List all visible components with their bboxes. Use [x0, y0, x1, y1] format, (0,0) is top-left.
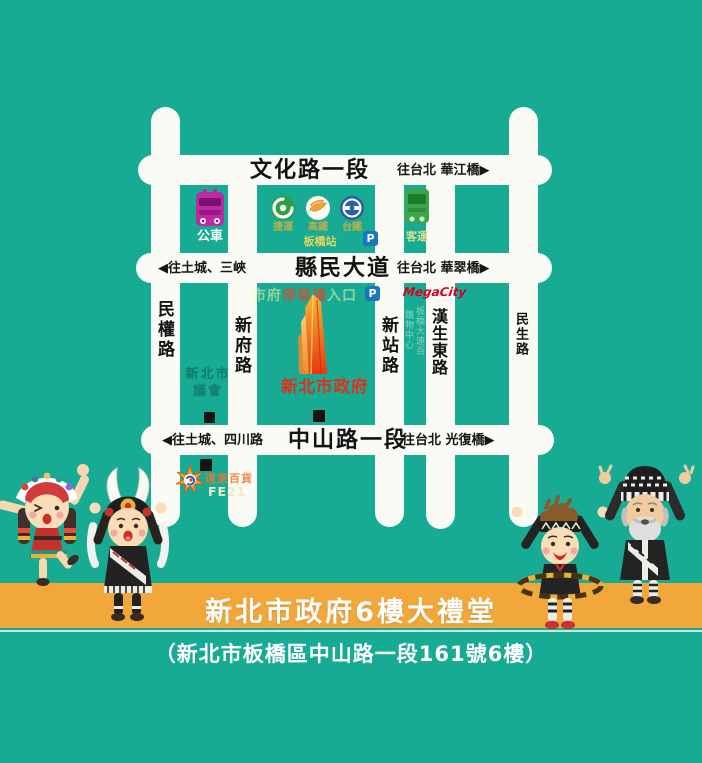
- road-label-xinzhan: 新站路: [379, 316, 396, 376]
- stop-marker: [204, 412, 215, 423]
- direction-hint-guangfu-bridge: 往台北 光復橋▶: [402, 434, 495, 447]
- road-label-xinfu: 新府路: [232, 316, 249, 376]
- parking-icon: P: [363, 231, 378, 246]
- road-label-xianmin: 縣民大道: [295, 258, 391, 280]
- stop-marker: [313, 410, 325, 422]
- mrt-logo: [270, 195, 296, 225]
- venue-address: （新北市板橋區中山路一段161號6樓）: [0, 638, 702, 668]
- indigenous-boy-dancing: [80, 466, 176, 630]
- city-hall-label: 新北市政府: [281, 373, 369, 397]
- road-label-wenhua: 文化路一段: [250, 160, 370, 182]
- city-hall-tower: [276, 290, 348, 378]
- direction-hint-huacui-bridge: 往台北 華翠橋▶: [397, 262, 490, 275]
- bus-icon: [195, 189, 225, 233]
- tra-logo: [339, 195, 365, 225]
- council-note-line2: 議會: [185, 383, 231, 400]
- fe21-code: FE21: [208, 484, 246, 499]
- direction-hint-tucheng-sichuan: ◀往土城、四川路: [162, 434, 263, 447]
- event-location-map: 文化路一段 往台北 華江橋▶ 縣民大道 ◀往土城、三峽 往台北 華翠橋▶ 中山路…: [0, 0, 702, 763]
- bus-label: 公車: [193, 230, 227, 243]
- road-label-minsheng: 民生路: [514, 312, 527, 357]
- megacity-note-col1: 購物中心: [403, 310, 413, 350]
- direction-hint-tucheng-sanxia: ◀往土城、三峽: [158, 262, 246, 275]
- mrt-label: 捷運: [268, 223, 298, 233]
- hsr-label: 高鐵: [303, 223, 333, 233]
- direction-hint-huajiang-bridge: 往台北 華江橋▶: [397, 164, 490, 177]
- council-note: 新北市 議會: [185, 366, 231, 400]
- hsr-logo: [305, 195, 331, 225]
- road-label-hansheng-east: 漢生東路: [430, 308, 446, 376]
- coach-icon: [403, 188, 431, 232]
- parking-icon: P: [365, 286, 380, 301]
- banqiao-station-label: 板橋站: [300, 236, 340, 247]
- road-label-zhongshan: 中山路一段: [288, 430, 408, 452]
- road-label-minquan: 民權路: [155, 300, 172, 360]
- council-note-line1: 新北市: [185, 366, 231, 383]
- megacity-logo: MegaCity: [402, 285, 467, 299]
- megacity-note-col2: 板橋大遠百: [414, 306, 424, 356]
- coach-label: 客運: [400, 231, 434, 242]
- indigenous-elder-cheering: [592, 452, 698, 608]
- fe21-star: [176, 464, 204, 500]
